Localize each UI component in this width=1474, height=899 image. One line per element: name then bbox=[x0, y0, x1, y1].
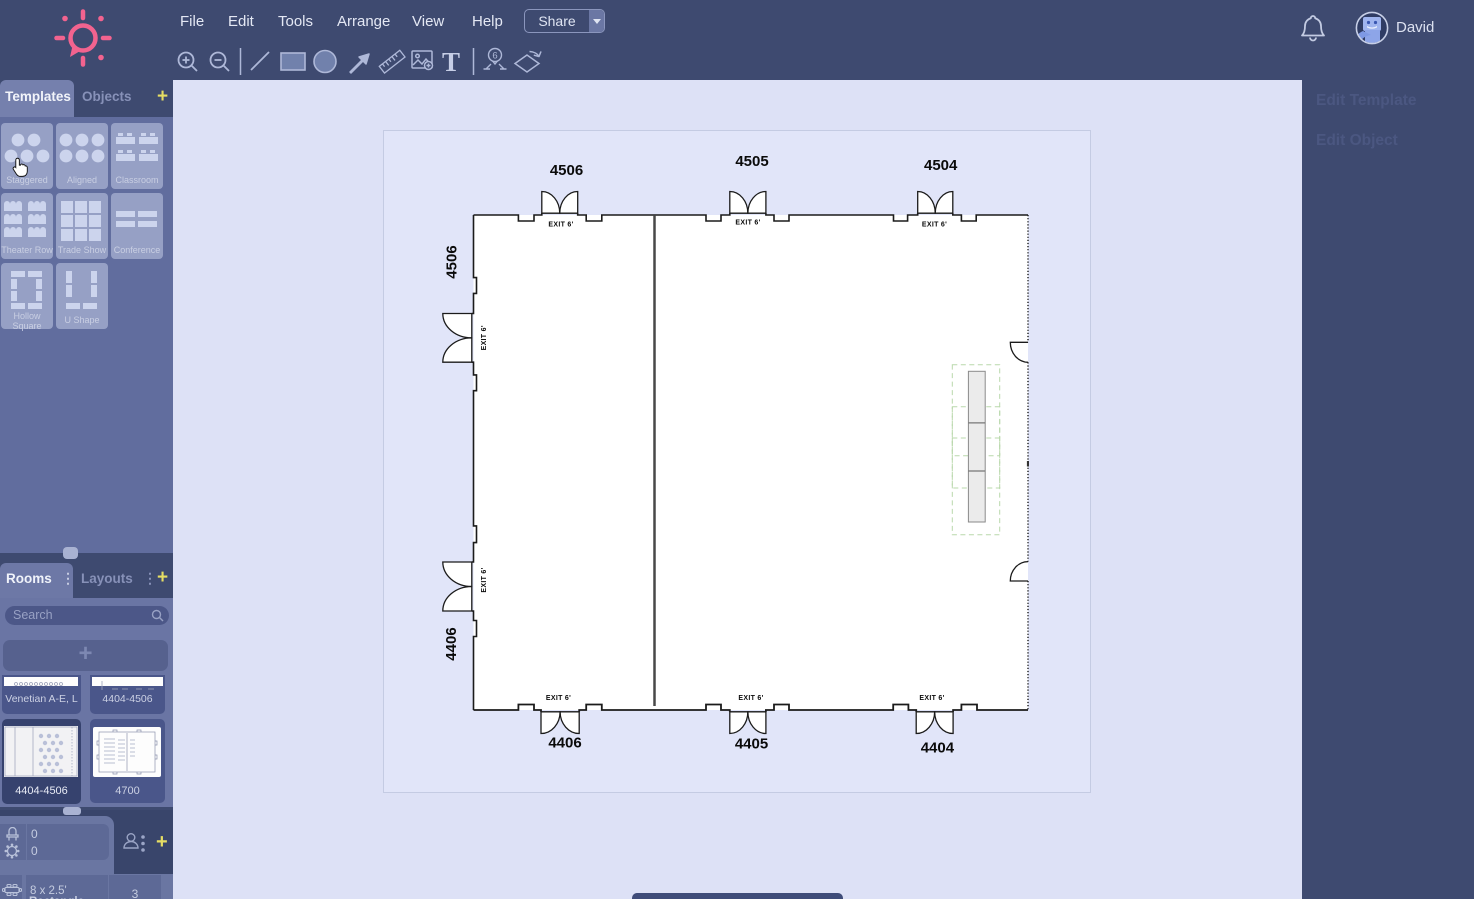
svg-text:4505: 4505 bbox=[735, 153, 768, 170]
svg-text:4405: 4405 bbox=[735, 736, 768, 753]
svg-text:4406: 4406 bbox=[443, 627, 460, 660]
svg-text:EXIT 6': EXIT 6' bbox=[738, 695, 763, 702]
svg-text:EXIT 6': EXIT 6' bbox=[546, 695, 571, 702]
svg-text:4404: 4404 bbox=[921, 740, 955, 757]
svg-text:EXIT 6': EXIT 6' bbox=[919, 695, 944, 702]
svg-text:T: T bbox=[442, 47, 460, 77]
svg-text:6: 6 bbox=[492, 51, 497, 62]
svg-text:4504: 4504 bbox=[924, 157, 958, 174]
svg-text:EXIT 6': EXIT 6' bbox=[481, 567, 488, 592]
svg-text:4406: 4406 bbox=[548, 735, 581, 752]
svg-text:EXIT 6': EXIT 6' bbox=[922, 221, 947, 228]
svg-text:4506: 4506 bbox=[444, 245, 461, 278]
svg-text:4506: 4506 bbox=[550, 162, 583, 179]
svg-text:EXIT 6': EXIT 6' bbox=[548, 221, 573, 228]
svg-text:EXIT 6': EXIT 6' bbox=[481, 325, 488, 350]
svg-text:EXIT 6': EXIT 6' bbox=[735, 219, 760, 226]
